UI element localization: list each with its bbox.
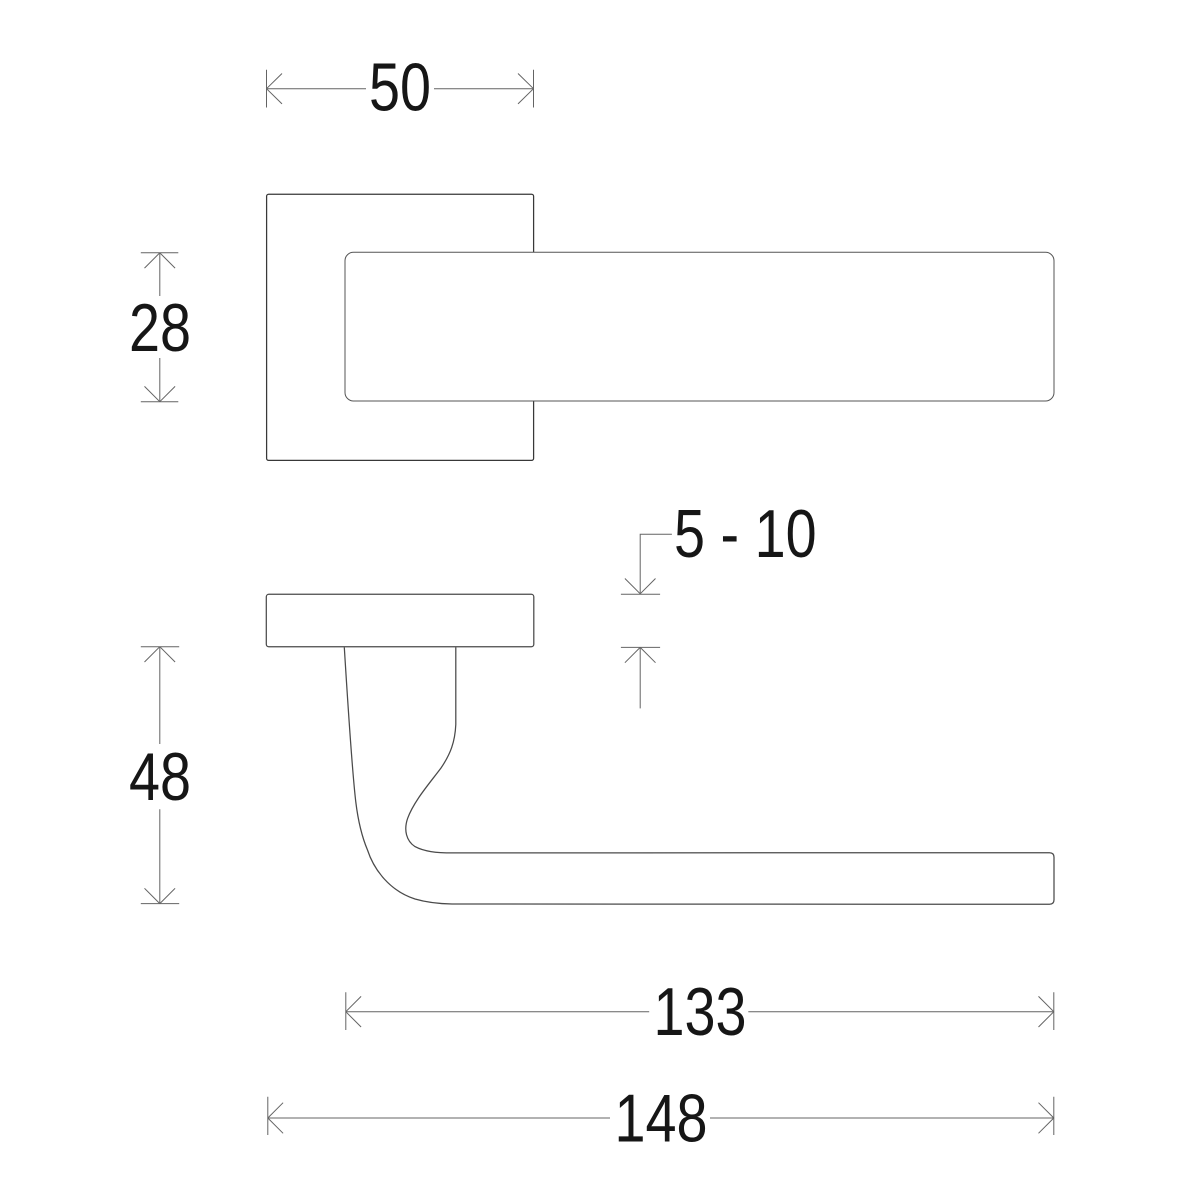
svg-text:48: 48 <box>129 740 191 815</box>
svg-text:50: 50 <box>369 50 431 125</box>
svg-text:148: 148 <box>614 1081 707 1156</box>
svg-text:133: 133 <box>653 975 746 1050</box>
svg-text:5 - 10: 5 - 10 <box>674 497 817 572</box>
svg-text:28: 28 <box>129 291 191 366</box>
